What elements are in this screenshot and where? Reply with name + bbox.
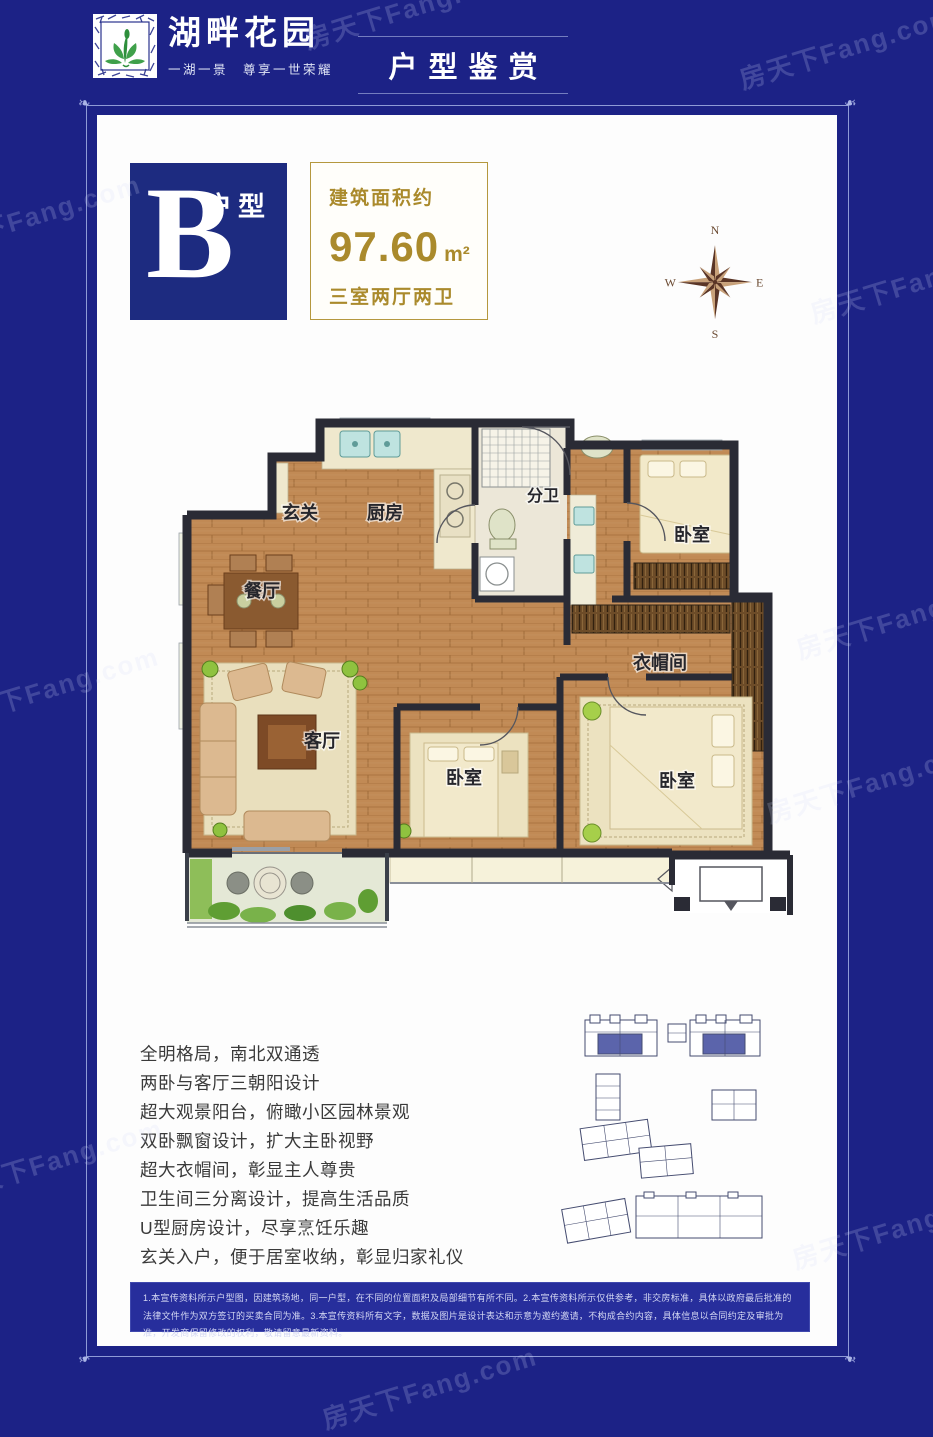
room-label-kitchen: 厨房 <box>367 502 403 523</box>
brand-logo <box>92 13 158 79</box>
unit-badge: B 户型 <box>130 163 287 320</box>
brand-tagline: 一湖一景 尊享一世荣耀 <box>168 59 333 78</box>
room-layout-text: 三室两厅两卫 <box>329 282 487 309</box>
compass-east: E <box>756 276 763 290</box>
feature-item: 玄关入户，便于居室收纳，彰显归家礼仪 <box>140 1243 550 1272</box>
brand-name: 湖畔花园 <box>168 16 333 52</box>
building-highlighted <box>585 1015 657 1056</box>
feature-item: 超大衣帽间，彰显主人尊贵 <box>140 1156 550 1185</box>
section-title-block: 户型鉴赏 <box>358 36 568 94</box>
page-title: 户型鉴赏 <box>358 37 568 93</box>
watermark-text: 房天下Fang.com <box>734 0 933 97</box>
room-label-bedroom-master: 卧室 <box>659 770 695 791</box>
area-value: 97.60 <box>329 223 439 271</box>
corner-flourish-icon: ❧ <box>78 96 91 111</box>
corner-flourish-icon: ❧ <box>844 96 857 111</box>
building-highlighted <box>690 1015 760 1056</box>
room-label-cloakroom: 衣帽间 <box>633 652 687 673</box>
area-unit: m² <box>444 243 470 267</box>
area-info-box: 建筑面积约 97.60 m² 三室两厅两卫 <box>310 162 488 320</box>
lotus-sprout-icon <box>92 13 158 79</box>
room-label-bath: 分卫 <box>527 487 559 505</box>
room-label-bedroom-middle: 卧室 <box>446 767 482 788</box>
compass-rose-icon: N E S W <box>660 220 770 345</box>
feature-item: U型厨房设计，尽享烹饪乐趣 <box>140 1214 550 1243</box>
brand-block: 湖畔花园 一湖一景 尊享一世荣耀 <box>168 16 333 78</box>
area-caption: 建筑面积约 <box>329 183 487 210</box>
room-label-bedroom-north: 卧室 <box>674 524 710 545</box>
feature-item: 超大观景阳台，俯瞰小区园林景观 <box>140 1098 550 1127</box>
feature-item: 双卧飘窗设计，扩大主卧视野 <box>140 1127 550 1156</box>
room-label-dining: 餐厅 <box>243 580 280 601</box>
compass-north: N <box>711 223 720 237</box>
feature-list: 全明格局，南北双通透 两卧与客厅三朝阳设计 超大观景阳台，俯瞰小区园林景观 双卧… <box>140 1040 550 1272</box>
disclaimer-bar: 1.本宣传资料所示户型图，因建筑场地，同一户型，在不同的位置面积及局部细节有所不… <box>130 1282 810 1332</box>
feature-item: 卫生间三分离设计，提高生活品质 <box>140 1185 550 1214</box>
floorplan-drawing: 玄关 厨房 分卫 卧室 餐厅 衣帽间 客厅 卧室 卧室 <box>172 415 797 945</box>
compass-south: S <box>712 327 719 340</box>
room-label-living: 客厅 <box>304 730 340 751</box>
floorplan-card: B 户型 建筑面积约 97.60 m² 三室两厅两卫 <box>97 115 837 1346</box>
compass-west: W <box>665 276 677 290</box>
corner-flourish-icon: ❧ <box>78 1351 91 1366</box>
unit-label: 户型 <box>205 185 271 224</box>
divider <box>358 93 568 94</box>
corner-flourish-icon: ❧ <box>844 1351 857 1366</box>
poster: 房天下Fang.com 房天下Fang.com 房天下Fang.com 房天下F… <box>0 0 933 1400</box>
feature-item: 全明格局，南北双通透 <box>140 1040 550 1069</box>
site-plan-minimap <box>540 1008 810 1258</box>
room-label-entry: 玄关 <box>282 502 318 523</box>
feature-item: 两卧与客厅三朝阳设计 <box>140 1069 550 1098</box>
